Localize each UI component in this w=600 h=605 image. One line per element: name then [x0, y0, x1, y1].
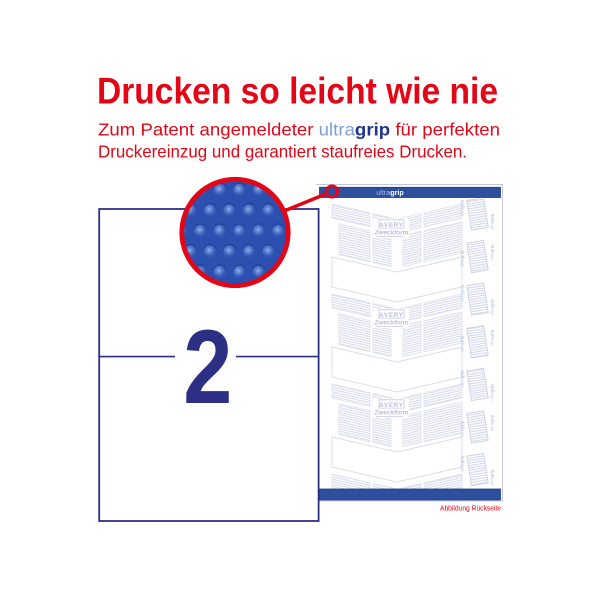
svg-text:Drucken so leicht wie nie: Drucken so leicht wie nie: [97, 71, 498, 112]
svg-text:ultragrip: ultragrip: [490, 244, 495, 261]
svg-text:AVERY: AVERY: [379, 402, 404, 409]
svg-text:ultragrip: ultragrip: [490, 469, 495, 486]
svg-text:ultragrip: ultragrip: [460, 285, 465, 302]
svg-text:2: 2: [183, 308, 232, 426]
svg-text:ultragrip: ultragrip: [460, 335, 465, 352]
svg-text:ultragrip: ultragrip: [460, 420, 465, 437]
svg-text:ultragrip: ultragrip: [460, 199, 465, 216]
svg-text:ultragrip: ultragrip: [490, 299, 495, 316]
svg-text:Zweckform: Zweckform: [374, 410, 409, 417]
svg-text:Abbildung Rückseite: Abbildung Rückseite: [440, 504, 501, 513]
svg-text:ultragrip: ultragrip: [490, 329, 495, 346]
svg-text:ultragrip: ultragrip: [376, 188, 404, 197]
svg-text:ultragrip: ultragrip: [460, 250, 465, 267]
svg-text:Zweckform: Zweckform: [374, 320, 409, 327]
svg-text:AVERY: AVERY: [379, 222, 404, 229]
svg-text:Zum Patent angemeldeter ultrag: Zum Patent angemeldeter ultragrip für pe…: [98, 120, 500, 140]
svg-text:ultragrip: ultragrip: [490, 213, 495, 230]
svg-text:AVERY: AVERY: [379, 312, 404, 319]
svg-text:Druckereinzug und garantiert s: Druckereinzug und garantiert staufreies …: [98, 142, 467, 162]
svg-text:Zweckform: Zweckform: [374, 230, 409, 237]
svg-text:ultragrip: ultragrip: [460, 370, 465, 387]
svg-text:ultragrip: ultragrip: [490, 384, 495, 401]
svg-text:ultragrip: ultragrip: [460, 455, 465, 472]
svg-text:ultragrip: ultragrip: [490, 414, 495, 431]
